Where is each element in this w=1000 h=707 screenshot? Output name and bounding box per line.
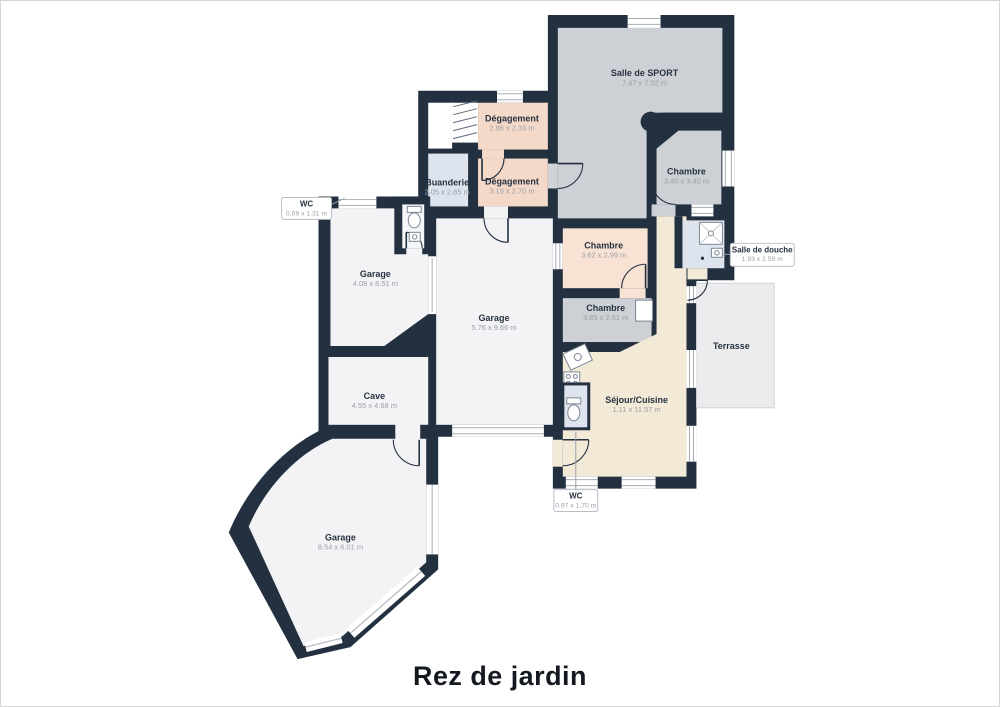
window [722,151,734,187]
room-label-buanderie: Buanderie [425,177,469,187]
window [628,15,661,28]
door-opening [548,164,558,189]
toilet-icon [567,398,581,404]
window [497,91,523,103]
window [691,204,713,216]
drain-dot [701,257,704,260]
douche-west-wall [675,216,683,268]
room-dims-garage3: 8.54 x 6.01 m [318,542,363,551]
room-dims-salle-de-sport: 7.47 x 7.02 m [622,79,667,88]
sink-icon [711,248,722,257]
callout-wc-bottom-label: WC [569,492,583,501]
window [686,350,696,388]
room-dims-degagement2: 3.19 x 2.70 m [489,186,534,195]
room-label-garage2: Garage [479,313,510,323]
door-opening [553,440,563,467]
room-dims-garage1: 4.08 x 6.51 m [353,279,398,288]
callout-salle-de-douche: Salle de douche 1.93 x 2.59 m [722,243,794,266]
toilet-icon [568,405,580,421]
shower-icon [699,222,722,244]
door-opening [620,288,646,298]
room-dims-degagement1: 2.96 x 2.33 m [489,124,534,133]
callout-douche-dims: 1.93 x 2.59 m [742,256,783,263]
sink-icon [409,232,420,241]
room-dims-sejour-cuisine: 1.11 x 11.57 m [612,405,660,414]
room-dims-buanderie: 2.05 x 2.65 m [425,187,470,196]
window [622,477,656,489]
door-opening [687,268,707,280]
room-dims-cave: 4.55 x 4.68 m [352,401,397,410]
room-dims-chambre1: 3.40 x 3.40 m [664,176,709,185]
room-label-chambre2: Chambre [584,240,623,250]
room-label-garage3: Garage [325,532,356,542]
wc2-room [563,384,589,429]
closet-space [428,103,452,149]
sport-chambre-divider-wall [652,113,723,131]
callout-wc-bottom-dims: 0.97 x 1.70 m [555,503,596,510]
door-opening [652,204,676,216]
floor-plan-page: Salle de SPORT 7.47 x 7.02 m Dégagement … [0,0,1000,707]
callout-wc-left-dims: 0.69 x 1.31 m [286,210,327,217]
door-opening [482,150,504,159]
room-label-chambre1: Chambre [667,167,706,177]
room-label-cave: Cave [364,391,385,401]
floor-plan-svg: Salle de SPORT 7.47 x 7.02 m Dégagement … [1,1,999,706]
door-opening [395,424,420,440]
wall-column [641,112,661,132]
plan-title: Rez de jardin [413,661,587,691]
window [566,477,598,489]
room-label-degagement1: Dégagement [485,114,539,124]
room-label-salle-de-sport: Salle de SPORT [611,68,679,78]
window [553,243,563,269]
room-dims-chambre3: 3.85 x 2.51 m [583,313,628,322]
door-opening [484,206,508,218]
closet-icon [636,300,653,321]
room-label-degagement2: Dégagement [485,176,539,186]
room-label-sejour-cuisine: Séjour/Cuisine [605,395,668,405]
door-opening [406,248,422,255]
room-dims-garage2: 5.76 x 9.66 m [471,323,516,332]
room-label-garage1: Garage [360,269,391,279]
window [686,426,696,462]
toilet-icon [407,206,421,227]
callout-douche-label: Salle de douche [732,245,793,254]
room-label-chambre3: Chambre [586,303,625,313]
room-dims-chambre2: 3.62 x 2.99 m [581,250,626,259]
callout-wc-left-label: WC [300,199,314,208]
room-label-terrasse: Terrasse [713,341,750,351]
garage-door [452,425,544,437]
